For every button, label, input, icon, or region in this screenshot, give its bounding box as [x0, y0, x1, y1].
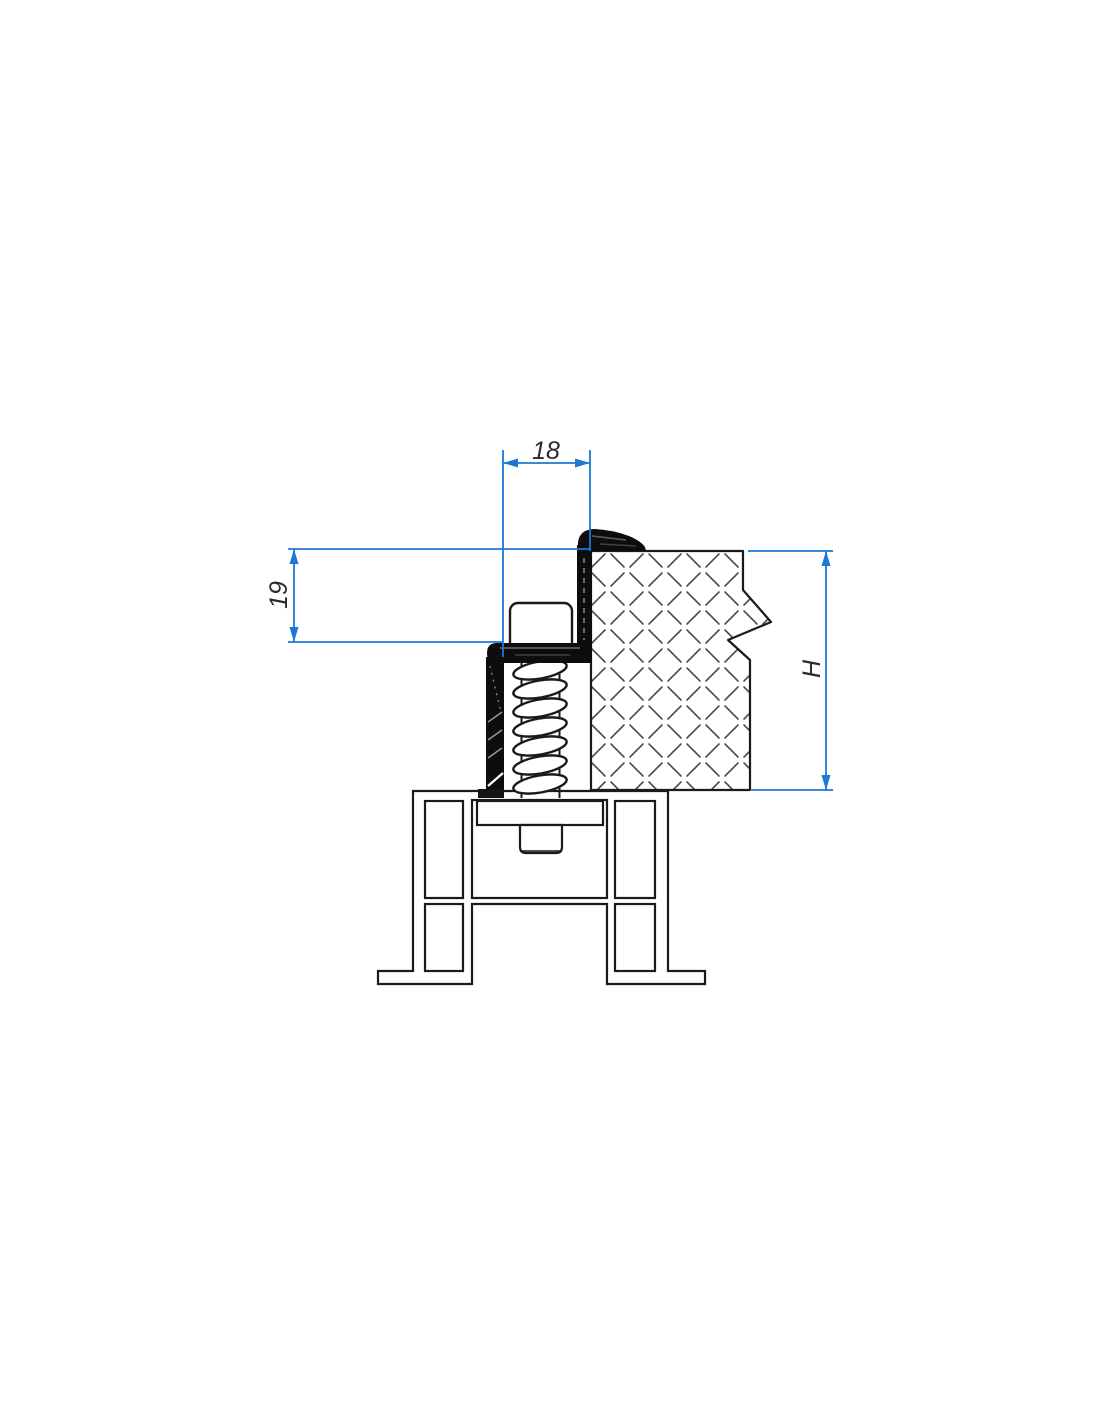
panel-body [591, 551, 771, 790]
dim-label-18: 18 [532, 437, 560, 465]
clamp-left-foot [478, 789, 504, 798]
dim-label-19: 19 [265, 581, 293, 609]
profile-hollow-left-upper [425, 801, 463, 898]
base-profile [378, 791, 705, 984]
arrow-19-top [290, 549, 299, 564]
arrow-h-top [822, 551, 831, 566]
profile-hollow-left-lower [425, 904, 463, 971]
spring [512, 657, 568, 798]
sandwich-panel [591, 551, 771, 790]
arrow-19-bottom [290, 627, 299, 642]
profile-hollow-right-lower [615, 904, 655, 971]
arrow-18-left [503, 459, 518, 468]
profile-hollow-right-upper [615, 801, 655, 898]
clamp-left-block [486, 657, 504, 791]
arrow-h-bottom [822, 775, 831, 790]
screw-tip [520, 825, 562, 853]
slot-nut-plate [477, 801, 603, 825]
screw-head [510, 603, 572, 650]
arrow-18-right [575, 459, 590, 468]
technical-drawing-canvas: 18 19 H [0, 0, 1100, 1422]
dim-label-h: H [798, 659, 826, 678]
